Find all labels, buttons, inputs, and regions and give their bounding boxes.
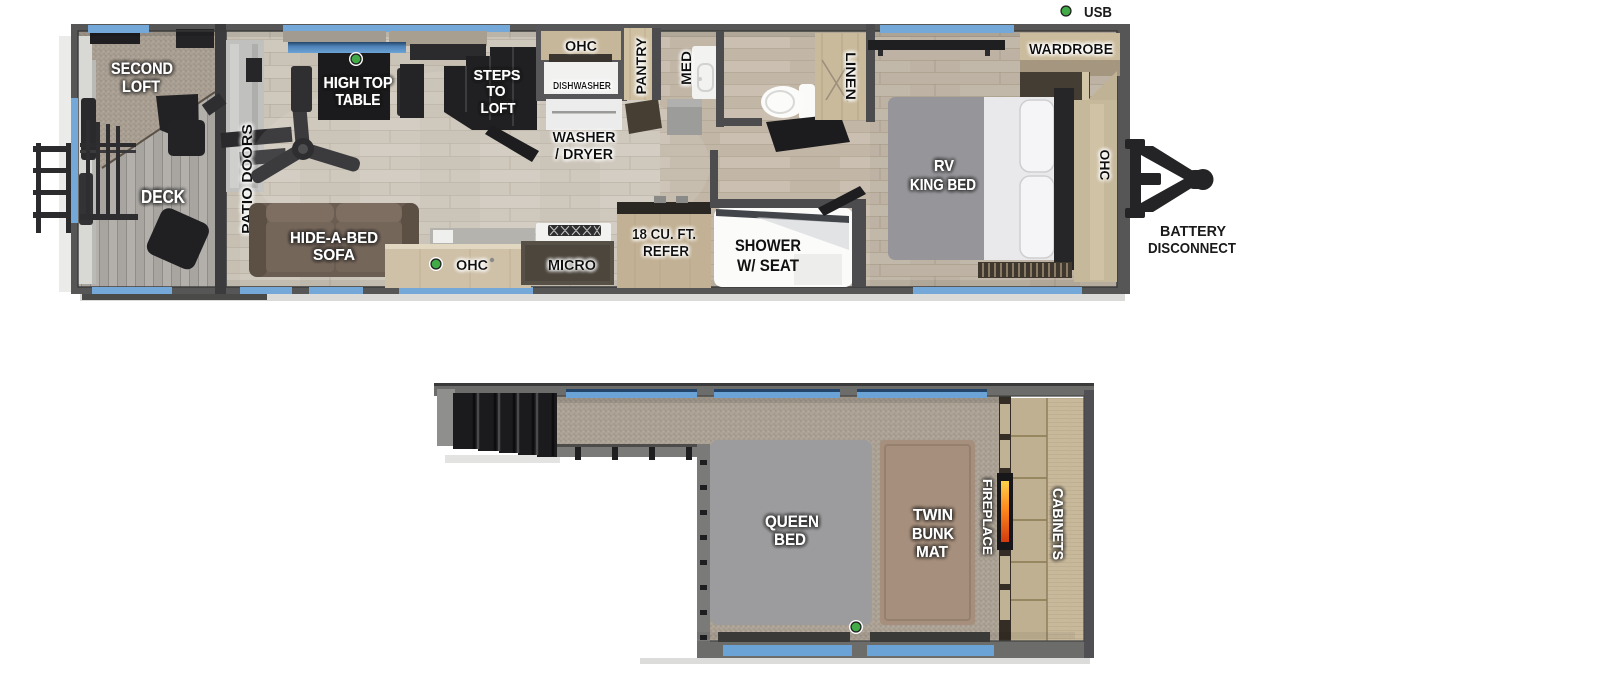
svg-text:BED: BED — [774, 530, 806, 549]
svg-text:SOFA: SOFA — [313, 247, 355, 264]
svg-text:DISHWASHER: DISHWASHER — [553, 81, 612, 92]
svg-text:BATTERY: BATTERY — [1160, 223, 1226, 240]
svg-text:STEPS: STEPS — [474, 67, 521, 84]
svg-text:BUNK: BUNK — [912, 526, 954, 543]
svg-text:MAT: MAT — [916, 544, 948, 561]
svg-text:FIREPLACE: FIREPLACE — [980, 479, 995, 555]
svg-text:W/ SEAT: W/ SEAT — [737, 256, 800, 275]
svg-text:KING BED: KING BED — [910, 177, 976, 194]
svg-text:SHOWER: SHOWER — [735, 236, 801, 255]
svg-text:DISCONNECT: DISCONNECT — [1148, 240, 1236, 257]
svg-text:/ DRYER: / DRYER — [555, 146, 613, 163]
svg-text:TWIN: TWIN — [913, 507, 953, 524]
svg-text:CABINETS: CABINETS — [1049, 488, 1066, 560]
svg-text:QUEEN: QUEEN — [765, 512, 819, 531]
svg-text:USB: USB — [1084, 4, 1112, 21]
svg-text:LOFT: LOFT — [481, 100, 516, 117]
svg-text:WASHER: WASHER — [553, 129, 616, 146]
svg-text:TABLE: TABLE — [336, 92, 381, 109]
svg-text:SECOND: SECOND — [111, 59, 173, 78]
svg-text:OHC: OHC — [456, 257, 488, 274]
svg-text:MICRO: MICRO — [548, 257, 596, 274]
svg-text:HIGH TOP: HIGH TOP — [324, 75, 393, 92]
svg-text:MED: MED — [678, 51, 694, 85]
svg-text:HIDE-A-BED: HIDE-A-BED — [290, 230, 378, 247]
svg-text:OHC: OHC — [1097, 150, 1113, 181]
svg-text:LINEN: LINEN — [843, 52, 859, 100]
svg-text:REFER: REFER — [643, 243, 689, 260]
svg-text:TO: TO — [487, 83, 506, 100]
svg-text:WARDROBE: WARDROBE — [1029, 41, 1113, 58]
svg-text:RV: RV — [934, 158, 954, 175]
svg-text:OHC: OHC — [565, 38, 597, 55]
svg-text:18 CU. FT.: 18 CU. FT. — [632, 226, 696, 243]
svg-text:LOFT: LOFT — [122, 77, 161, 96]
svg-text:PANTRY: PANTRY — [633, 37, 649, 95]
svg-text:DECK: DECK — [141, 187, 185, 207]
